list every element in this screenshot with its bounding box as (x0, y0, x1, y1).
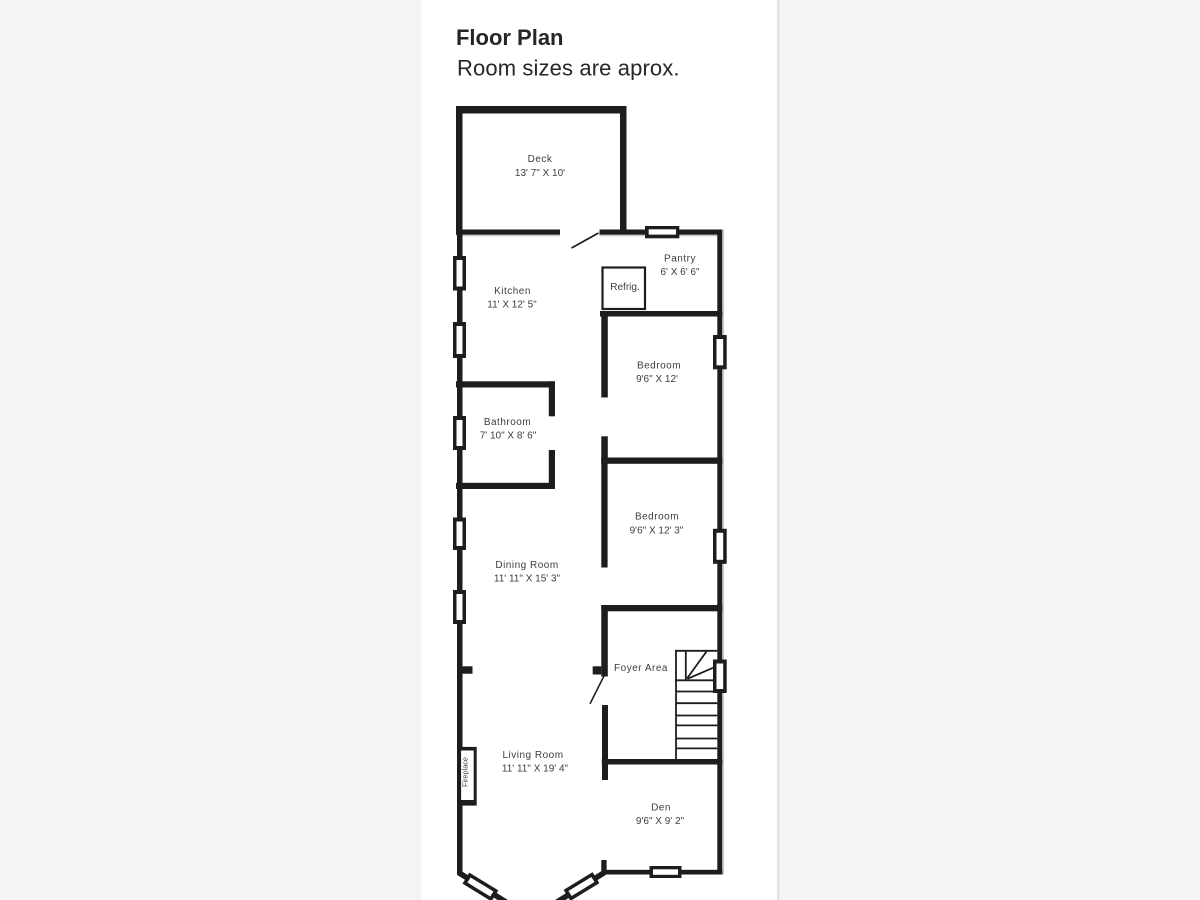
svg-text:11' 11" X 15' 3": 11' 11" X 15' 3" (494, 574, 561, 585)
svg-text:Den: Den (651, 803, 671, 814)
svg-text:Kitchen: Kitchen (494, 286, 531, 297)
svg-text:9'6" X 9' 2": 9'6" X 9' 2" (636, 816, 685, 827)
svg-text:Pantry: Pantry (664, 254, 696, 265)
svg-text:Room sizes are aprox.: Room sizes are aprox. (457, 56, 680, 81)
svg-text:Bedroom: Bedroom (635, 512, 679, 523)
svg-text:Deck: Deck (528, 154, 553, 165)
svg-text:Living Room: Living Room (502, 750, 563, 761)
svg-text:Dining Room: Dining Room (495, 560, 558, 571)
svg-text:Floor Plan: Floor Plan (456, 25, 564, 50)
svg-text:9'6" X 12' 3": 9'6" X 12' 3" (630, 526, 684, 537)
svg-text:11' 11" X 19' 4": 11' 11" X 19' 4" (502, 764, 569, 775)
svg-text:13' 7" X 10': 13' 7" X 10' (515, 168, 565, 179)
svg-text:Bathroom: Bathroom (484, 417, 531, 428)
svg-text:7' 10" X 8' 6": 7' 10" X 8' 6" (480, 431, 537, 442)
svg-text:Fireplace: Fireplace (461, 757, 470, 787)
svg-text:6' X 6' 6": 6' X 6' 6" (660, 267, 700, 278)
svg-text:Bedroom: Bedroom (637, 361, 681, 372)
svg-text:Foyer Area: Foyer Area (614, 663, 668, 674)
svg-text:11' X 12' 5": 11' X 12' 5" (487, 300, 537, 311)
svg-text:9'6" X 12': 9'6" X 12' (636, 374, 678, 385)
svg-text:Refrig.: Refrig. (610, 282, 639, 293)
